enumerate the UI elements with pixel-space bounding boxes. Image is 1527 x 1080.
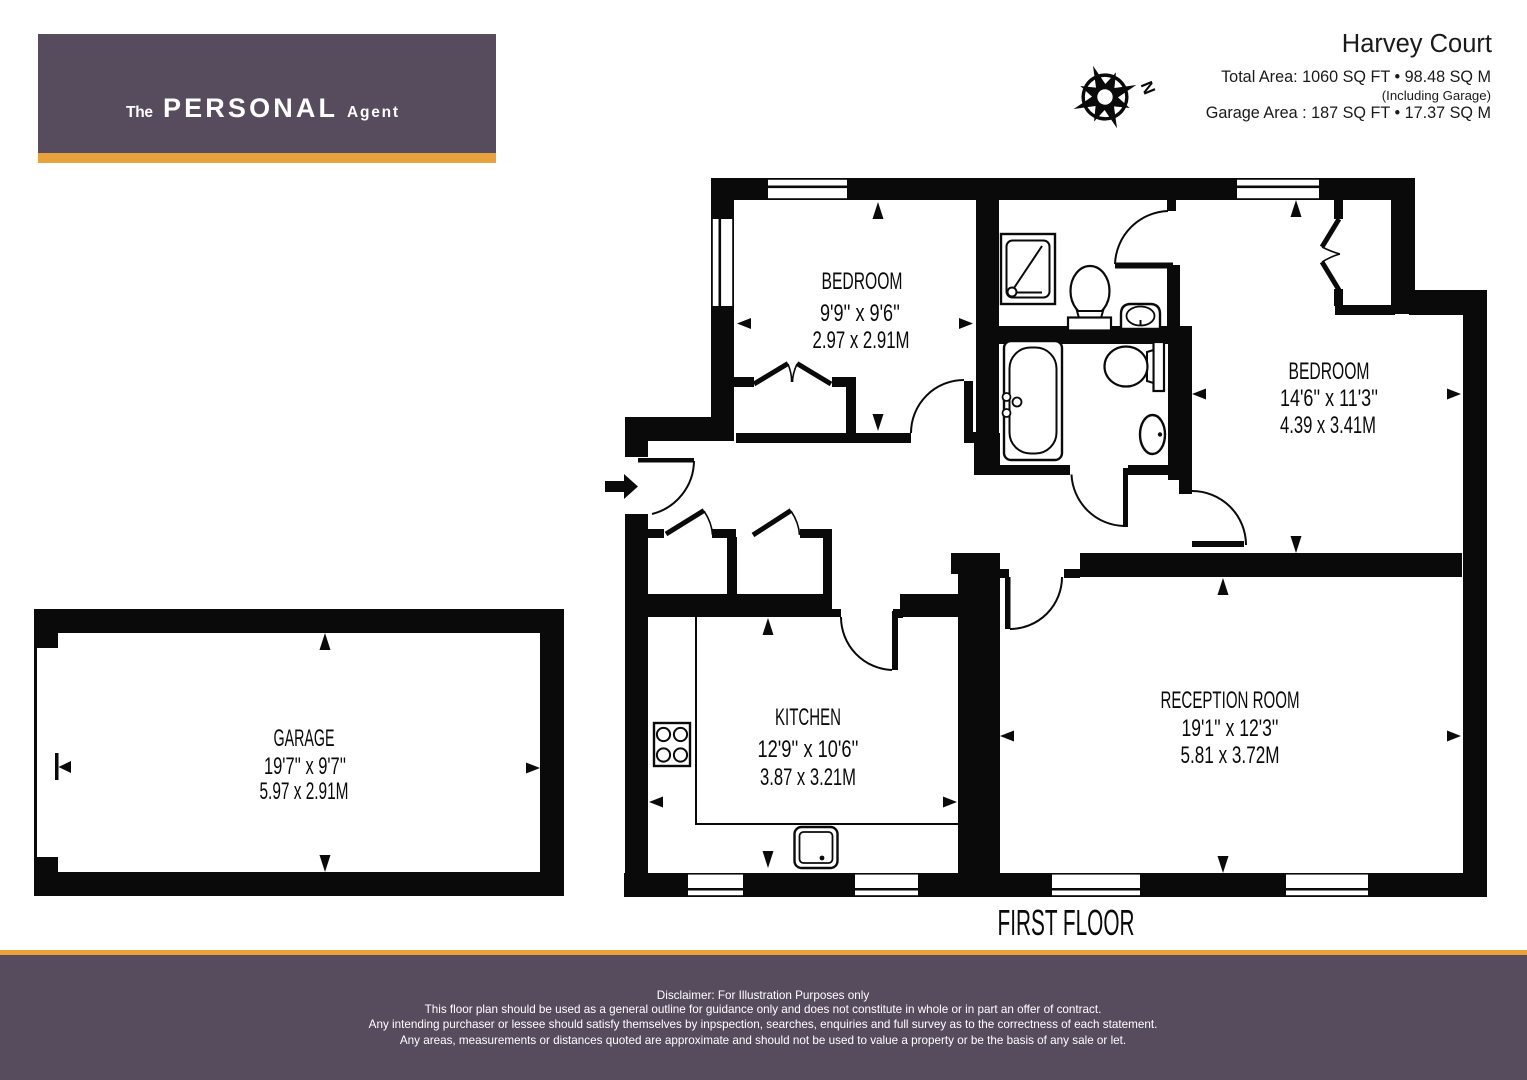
svg-text:Disclaimer: For Illustration P: Disclaimer: For Illustration Purposes on… [657,989,870,1002]
svg-text:2.97 x 2.91M: 2.97 x 2.91M [813,327,910,354]
svg-text:FIRST FLOOR: FIRST FLOOR [998,902,1135,943]
svg-text:The: The [126,104,153,121]
svg-text:PERSONAL: PERSONAL [163,93,335,123]
svg-text:5.97 x 2.91M: 5.97 x 2.91M [260,778,349,805]
svg-text:Harvey Court: Harvey Court [1342,30,1492,58]
svg-text:BEDROOM: BEDROOM [822,268,903,295]
svg-text:Agent: Agent [347,104,398,121]
svg-text:4.39 x 3.41M: 4.39 x 3.41M [1280,412,1376,439]
svg-text:9'9'' x 9'6'': 9'9'' x 9'6'' [820,300,900,327]
svg-text:Any areas, measurements or dis: Any areas, measurements or distances quo… [400,1034,1126,1047]
svg-text:This floor plan should be used: This floor plan should be used as a gene… [425,1003,1102,1016]
svg-text:Any intending purchaser or les: Any intending purchaser or lessee should… [369,1018,1158,1031]
svg-text:3.87 x 3.21M: 3.87 x 3.21M [760,764,856,791]
svg-text:19'1'' x 12'3'': 19'1'' x 12'3'' [1182,715,1279,742]
svg-text:KITCHEN: KITCHEN [775,704,841,731]
svg-text:(Including Garage): (Including Garage) [1382,88,1491,103]
svg-text:Total Area: 1060 SQ FT • 98.48: Total Area: 1060 SQ FT • 98.48 SQ M [1221,68,1491,86]
svg-text:BEDROOM: BEDROOM [1289,358,1370,385]
svg-text:5.81 x 3.72M: 5.81 x 3.72M [1181,742,1280,769]
svg-text:RECEPTION ROOM: RECEPTION ROOM [1161,687,1300,714]
svg-text:14'6'' x 11'3'': 14'6'' x 11'3'' [1280,385,1378,412]
svg-text:12'9'' x 10'6'': 12'9'' x 10'6'' [758,736,859,763]
svg-text:GARAGE: GARAGE [274,725,335,752]
svg-text:19'7'' x 9'7'': 19'7'' x 9'7'' [264,753,346,780]
svg-text:Garage Area : 187 SQ FT • 17.3: Garage Area : 187 SQ FT • 17.37 SQ M [1206,104,1491,122]
